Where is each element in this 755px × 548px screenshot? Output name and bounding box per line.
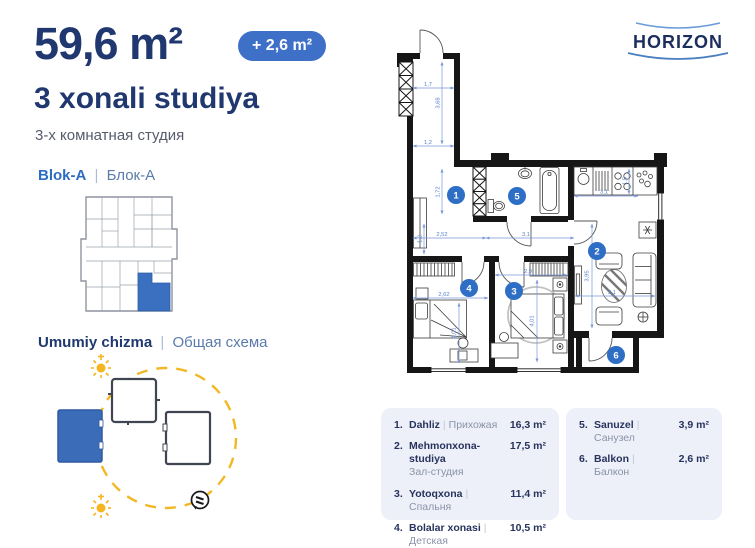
dim-hall-width: 2,52 bbox=[436, 232, 447, 238]
kids-wardrobe bbox=[414, 263, 455, 276]
legend-panel-right: 5. Sanuzel|Санузел 3,9 m² 6. Balkon|Балк… bbox=[566, 408, 722, 520]
legend-item-name-ru: Санузел bbox=[594, 432, 635, 444]
legend-item-1: 1. Dahliz|Прихожая 16,3 m² bbox=[394, 419, 546, 432]
total-area-title: 59,6 m² bbox=[34, 18, 182, 70]
dim-living-width: 3,1 bbox=[608, 290, 616, 296]
legend-item-number: 4. bbox=[394, 522, 409, 535]
dim-bedroom-depth: 4,01 bbox=[530, 315, 536, 326]
legend-item-name-ru: Балкон bbox=[594, 466, 629, 478]
legend-item-name-uz: Balkon bbox=[594, 453, 629, 465]
legend-item-area: 11,4 m² bbox=[504, 488, 546, 501]
dim-entry-width2: 1,2 bbox=[424, 140, 432, 146]
bathroom-sink bbox=[519, 167, 532, 179]
apartment-title-ru: 3-х комнатная студия bbox=[35, 127, 184, 144]
marker-room-6-label: 6 bbox=[613, 350, 618, 361]
block-label-ru: Блок-А bbox=[107, 167, 156, 184]
double-bed bbox=[511, 294, 564, 338]
scheme-label-separator: | bbox=[160, 334, 164, 351]
armchair bbox=[596, 307, 622, 325]
legend-item-2: 2. Mehmonxona-studiya Зал-студия 17,5 m² bbox=[394, 440, 546, 479]
legend-item-number: 1. bbox=[394, 419, 409, 432]
legend-item-6: 6. Balkon|Балкон 2,6 m² bbox=[579, 453, 709, 479]
dim-hall-depth: 1,72 bbox=[436, 186, 442, 197]
kids-bed bbox=[414, 300, 467, 338]
desk-and-chair bbox=[450, 338, 478, 362]
legend-item-area: 3,9 m² bbox=[673, 419, 709, 432]
marker-room-2-label: 2 bbox=[594, 246, 599, 257]
legend-item-area: 17,5 m² bbox=[504, 440, 546, 453]
dim-entry-width: 1,7 bbox=[424, 82, 432, 88]
marker-room-4-label: 4 bbox=[466, 283, 472, 294]
block-label-separator: | bbox=[95, 167, 99, 184]
bonus-area-badge: + 2,6 m² bbox=[238, 31, 326, 61]
scheme-label-ru: Общая схема bbox=[172, 334, 267, 351]
scheme-label: Umumiy chizma | Общая схема bbox=[38, 334, 268, 351]
marker-room-3-label: 3 bbox=[511, 286, 516, 297]
marker-room-1-label: 1 bbox=[453, 190, 459, 201]
dim-kids-depth: 4,01 bbox=[452, 327, 458, 338]
legend-separator: | bbox=[443, 419, 446, 431]
legend-separator: | bbox=[632, 453, 635, 465]
legend-item-4: 4. Bolalar xonasi|Детская 10,5 m² bbox=[394, 522, 546, 548]
legend-item-number: 5. bbox=[579, 419, 594, 432]
legend-item-name-ru: Спальня bbox=[409, 501, 451, 513]
legend-item-name-uz: Yotoqxona bbox=[409, 488, 462, 500]
legend-item-number: 2. bbox=[394, 440, 409, 453]
apartment-title-uz: 3 xonali studiya bbox=[34, 82, 259, 116]
kitchen-sink-icon bbox=[578, 174, 589, 185]
legend-separator: | bbox=[637, 419, 640, 431]
scheme-label-uz: Umumiy chizma bbox=[38, 334, 152, 351]
legend-item-3: 3. Yotoqxona|Спальня 11,4 m² bbox=[394, 488, 546, 514]
toilet bbox=[488, 200, 505, 213]
dim-hall-depth2: 1,2 bbox=[418, 235, 424, 243]
bathtub bbox=[540, 168, 559, 214]
legend-item-area: 10,5 m² bbox=[504, 522, 546, 535]
dim-kitchen-width: 3,1 bbox=[600, 190, 608, 196]
legend-item-name-uz: Bolalar xonasi bbox=[409, 522, 481, 534]
legend-item-number: 6. bbox=[579, 453, 594, 466]
dim-hall-width2: 3,1 bbox=[522, 232, 530, 238]
block-label-uz: Blok-A bbox=[38, 167, 86, 184]
marker-room-5-label: 5 bbox=[514, 191, 520, 202]
legend-item-name-ru: Детская bbox=[409, 535, 448, 547]
legend-item-number: 3. bbox=[394, 488, 409, 501]
fridge bbox=[639, 222, 656, 238]
building-right bbox=[166, 412, 210, 464]
legend-item-name-ru: Прихожая bbox=[449, 419, 498, 431]
legend-item-name-uz: Dahliz bbox=[409, 419, 440, 431]
legend-item-area: 16,3 m² bbox=[504, 419, 546, 432]
legend-item-name-uz: Sanuzel bbox=[594, 419, 634, 431]
bedroom-wardrobe bbox=[530, 263, 568, 276]
kitchen-counter bbox=[574, 167, 657, 195]
dim-bedroom-width: 2,9 bbox=[524, 269, 532, 275]
floor-lamp bbox=[638, 312, 648, 322]
dim-kitchen-depth: 1,5 bbox=[623, 177, 629, 185]
sun-icon-bottom bbox=[91, 494, 111, 518]
site-plan bbox=[28, 350, 272, 526]
sun-icon-top bbox=[91, 354, 111, 378]
sofa bbox=[633, 253, 656, 307]
kids-nightstand bbox=[416, 288, 428, 299]
site-buildings bbox=[58, 379, 210, 464]
dim-living-depth: 3,95 bbox=[585, 270, 591, 281]
legend-item-name-uz: Mehmonxona-studiya bbox=[409, 440, 480, 465]
compass-icon bbox=[192, 492, 209, 510]
building-top bbox=[112, 379, 156, 422]
block-label: Blok-A | Блок-А bbox=[38, 167, 155, 184]
building-left-highlighted bbox=[58, 410, 102, 462]
apartment-floor-plan: 1,7 3,68 1,2 1,72 1,2 2,52 3,1 3,1 1,5 3… bbox=[384, 26, 670, 382]
legend-separator: | bbox=[484, 522, 487, 534]
legend-item-name-ru: Зал-студия bbox=[409, 466, 464, 478]
dim-kids-width: 2,62 bbox=[438, 292, 449, 298]
legend-item-5: 5. Sanuzel|Санузел 3,9 m² bbox=[579, 419, 709, 445]
stove-icon bbox=[615, 173, 621, 179]
legend-panel-left: 1. Dahliz|Прихожая 16,3 m² 2. Mehmonxona… bbox=[381, 408, 559, 520]
legend-separator: | bbox=[465, 488, 468, 500]
nightstand bbox=[553, 278, 567, 291]
nightstand bbox=[553, 340, 567, 353]
dim-entry-depth: 3,68 bbox=[436, 97, 442, 108]
legend-item-area: 2,6 m² bbox=[673, 453, 709, 466]
block-floor-plan bbox=[72, 189, 186, 321]
tv-stand bbox=[575, 266, 582, 304]
